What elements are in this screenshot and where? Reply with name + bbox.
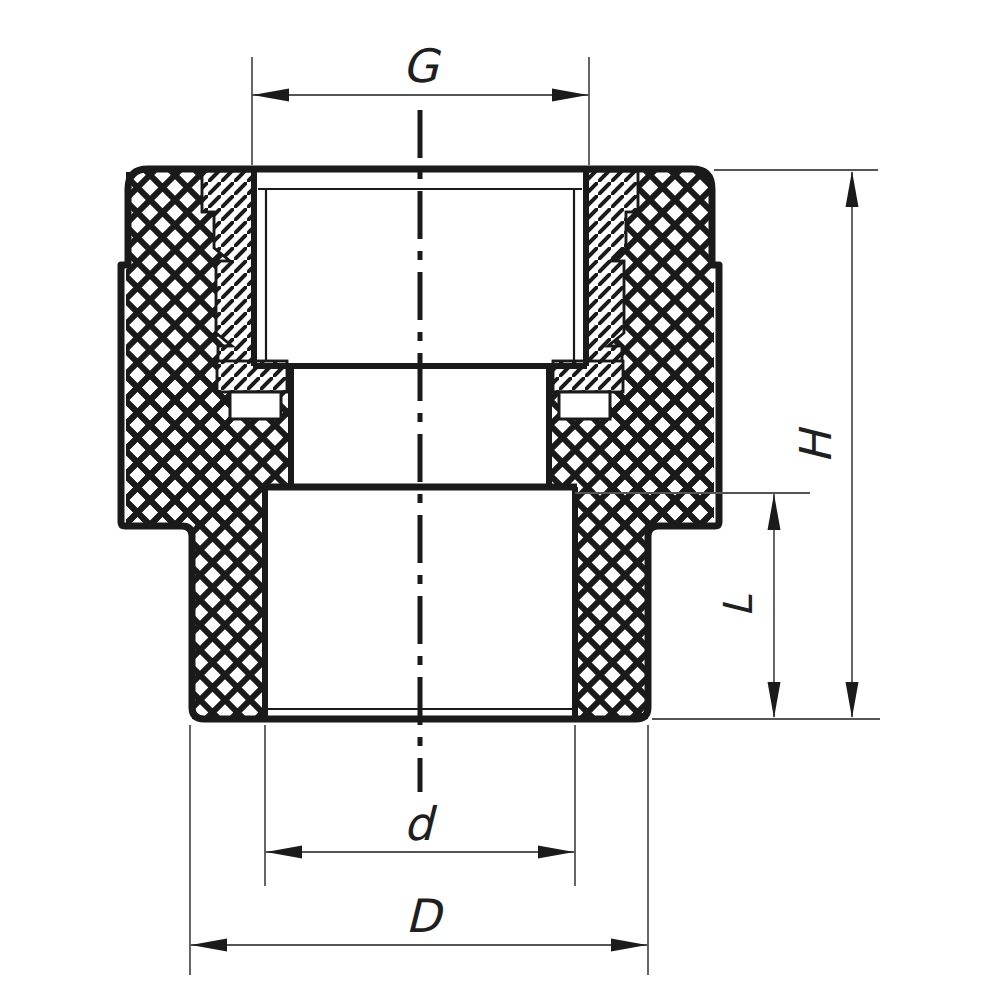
dimension-label-G: G <box>402 39 441 93</box>
dimension-d: d <box>265 725 575 886</box>
relief-pocket-right <box>559 392 610 419</box>
dimension-label-L: L <box>715 594 761 617</box>
d-arrow-right <box>538 846 574 859</box>
l-arrow-bottom <box>768 682 781 718</box>
g-arrow-right <box>552 89 588 102</box>
d-arrow-left <box>266 846 302 859</box>
h-arrow-bottom <box>846 682 859 718</box>
D-arrow-right <box>611 939 647 952</box>
dimension-label-D: D <box>405 889 445 943</box>
dimension-label-H: H <box>790 427 841 464</box>
D-arrow-left <box>191 939 227 952</box>
relief-pocket-left <box>230 392 281 419</box>
hatch-lower-left-wall <box>192 526 265 719</box>
hatch-lower-right-wall <box>575 526 648 719</box>
fitting-cross-section-drawing: G H L d <box>0 0 1000 1000</box>
hatch-shoulder-left <box>126 487 265 526</box>
g-arrow-left <box>253 89 289 102</box>
h-arrow-top <box>846 171 859 207</box>
dimension-label-d: d <box>403 797 437 851</box>
drawing-sheet: G H L d <box>0 0 1000 1000</box>
l-arrow-top <box>768 494 781 530</box>
